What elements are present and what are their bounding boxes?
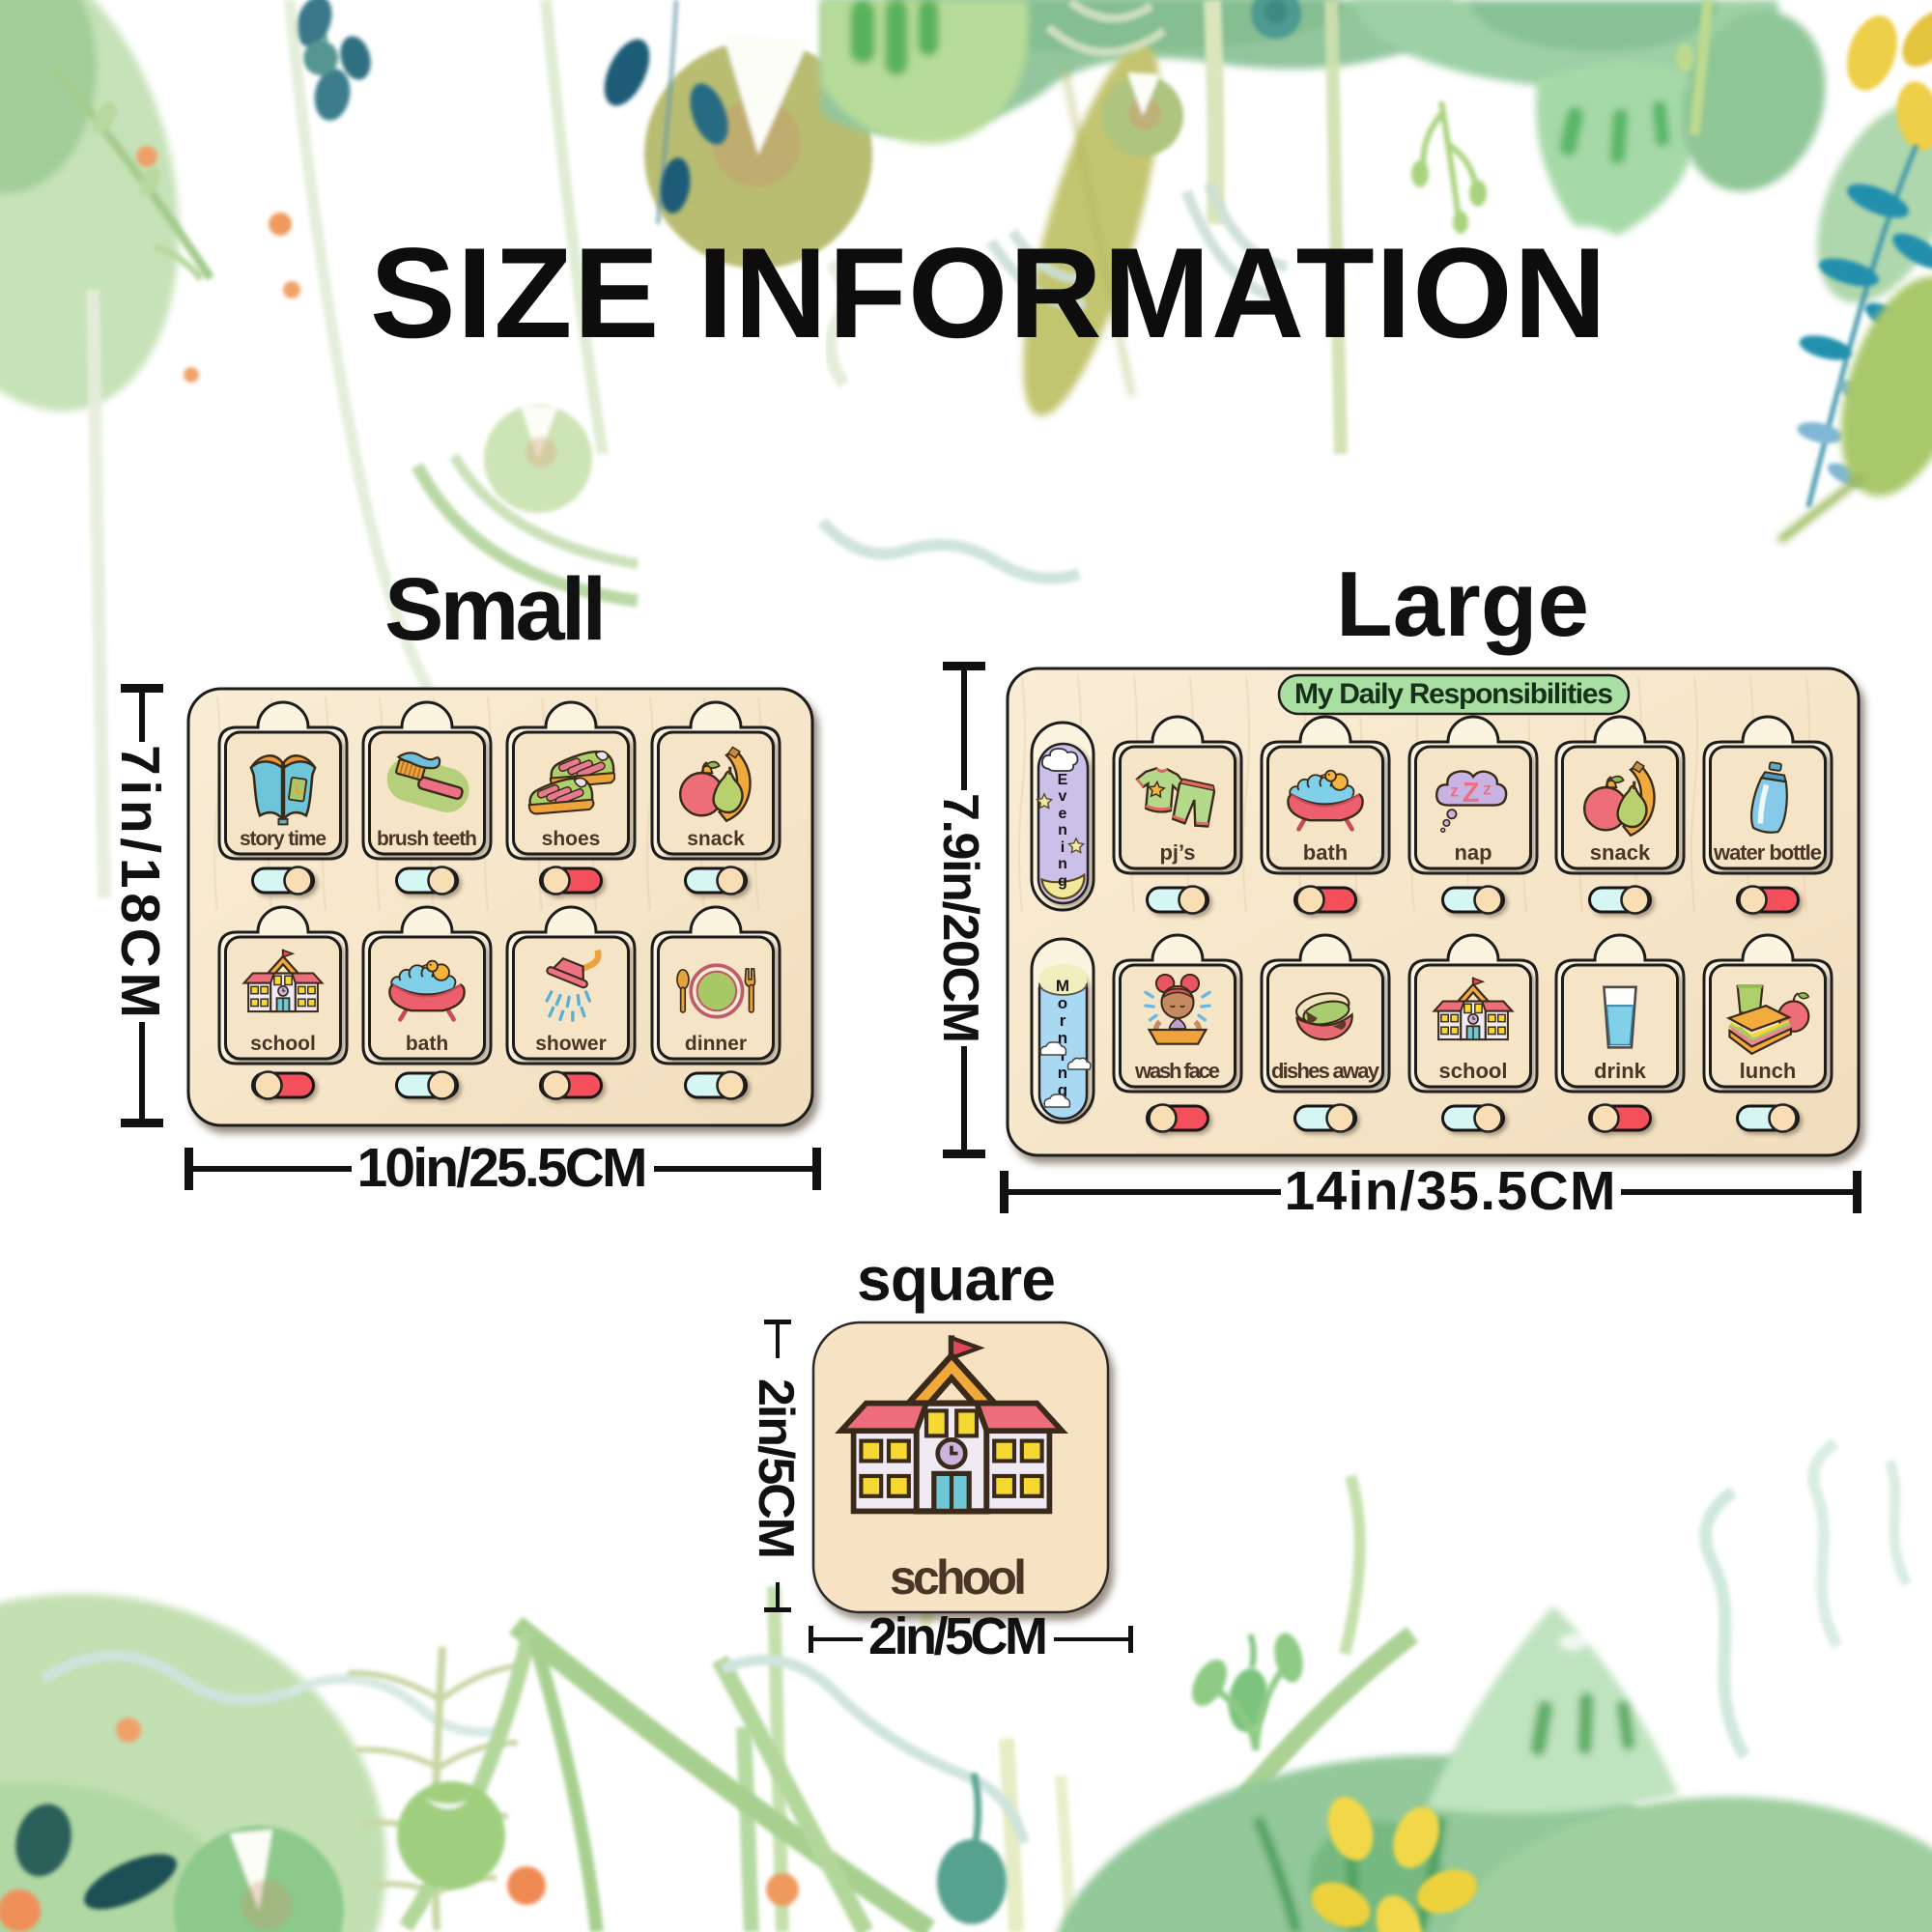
svg-text:10in/25.5CM: 10in/25.5CM [357, 1137, 648, 1199]
svg-text:school: school [890, 1550, 1027, 1605]
svg-text:bath: bath [1303, 840, 1348, 865]
svg-text:dishes away: dishes away [1271, 1059, 1380, 1083]
svg-text:7in/18CM: 7in/18CM [109, 745, 171, 1018]
svg-text:brush teeth: brush teeth [377, 828, 477, 850]
svg-text:7.9in/20CM: 7.9in/20CM [932, 793, 988, 1043]
svg-text:Morning: Morning [1056, 977, 1069, 1099]
svg-text:square: square [857, 1244, 1056, 1314]
svg-text:story time: story time [240, 828, 327, 850]
svg-text:drink: drink [1594, 1059, 1647, 1083]
svg-text:Large: Large [1336, 553, 1589, 656]
svg-text:nap: nap [1454, 840, 1492, 865]
svg-text:2in/5CM: 2in/5CM [748, 1378, 804, 1559]
svg-text:Small: Small [384, 560, 607, 659]
svg-text:school: school [250, 1033, 316, 1055]
svg-text:pj’s: pj’s [1159, 840, 1195, 865]
svg-text:water bottle: water bottle [1713, 840, 1822, 865]
svg-text:dinner: dinner [685, 1033, 747, 1055]
svg-text:school: school [1439, 1059, 1508, 1083]
svg-text:lunch: lunch [1740, 1059, 1797, 1083]
svg-text:2in/5CM: 2in/5CM [868, 1607, 1048, 1665]
svg-text:snack: snack [687, 828, 745, 850]
svg-text:My Daily Responsibilities: My Daily Responsibilities [1294, 678, 1613, 710]
svg-text:bath: bath [406, 1033, 448, 1055]
svg-text:snack: snack [1590, 840, 1651, 865]
svg-text:14in/35.5CM: 14in/35.5CM [1285, 1160, 1616, 1222]
svg-text:SIZE INFORMATION: SIZE INFORMATION [370, 222, 1606, 365]
svg-text:shoes: shoes [542, 828, 601, 850]
svg-text:wash face: wash face [1134, 1059, 1220, 1083]
svg-text:Evening: Evening [1058, 772, 1068, 890]
svg-text:shower: shower [535, 1033, 607, 1055]
